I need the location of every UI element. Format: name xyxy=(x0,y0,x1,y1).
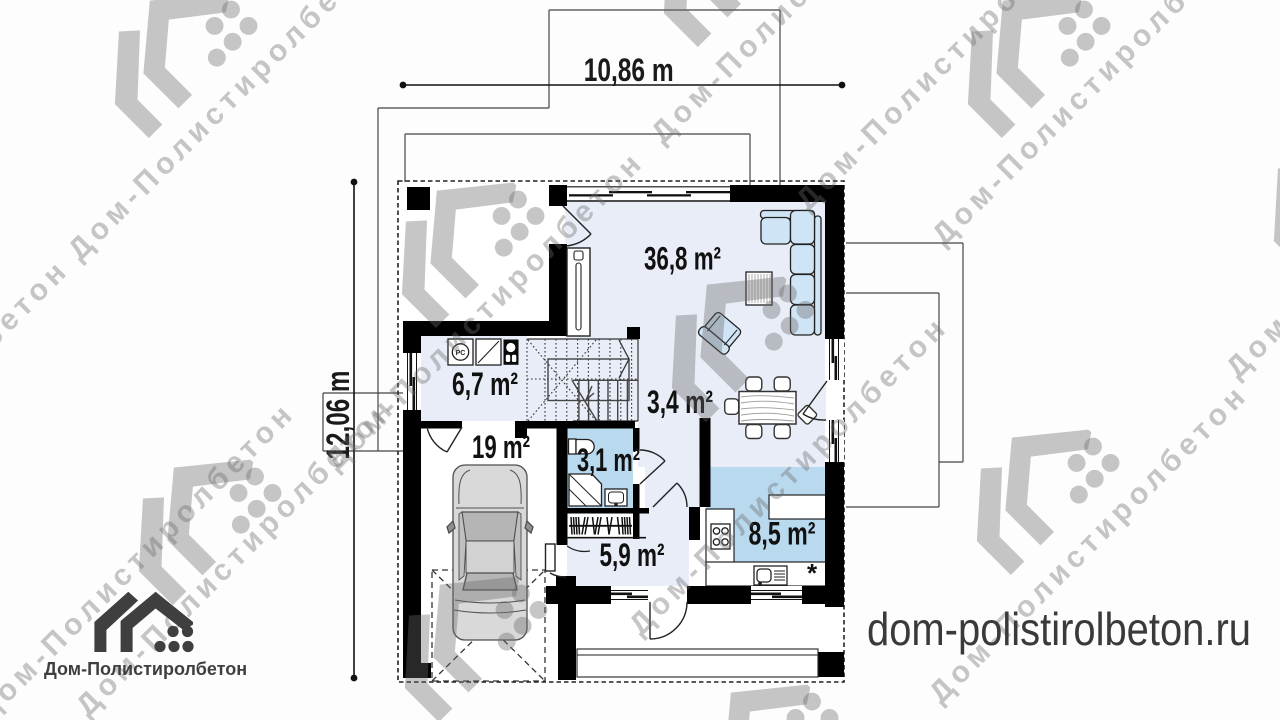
svg-text:19 m²: 19 m² xyxy=(472,429,530,465)
svg-text:dom-polistirolbeton.ru: dom-polistirolbeton.ru xyxy=(867,603,1251,655)
svg-text:Дом-Полистиролбетон: Дом-Полистиролбетон xyxy=(44,659,247,679)
svg-text:10,86 m: 10,86 m xyxy=(584,52,674,88)
svg-text:6,7 m²: 6,7 m² xyxy=(452,366,518,402)
svg-text:3,1 m²: 3,1 m² xyxy=(577,442,640,478)
svg-text:5,9 m²: 5,9 m² xyxy=(600,537,665,573)
svg-text:*: * xyxy=(807,558,818,588)
svg-text:36,8 m²: 36,8 m² xyxy=(644,241,721,277)
